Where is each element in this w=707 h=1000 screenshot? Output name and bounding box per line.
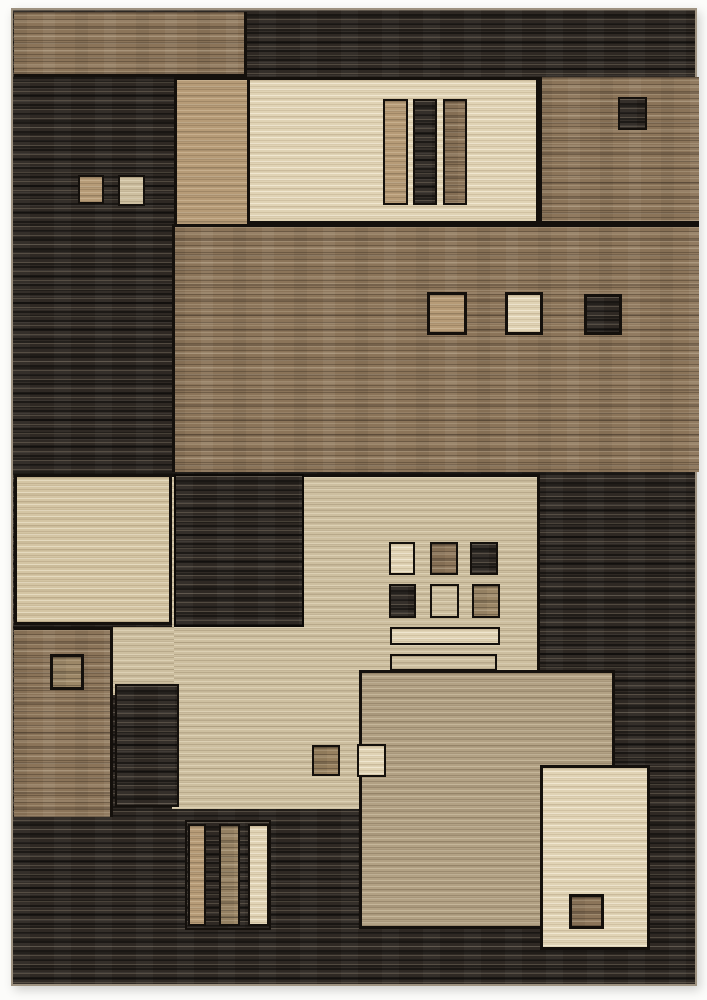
grid-bar-cream — [390, 627, 500, 645]
top-right-dark-square — [618, 97, 647, 130]
grid-square-brown-1 — [430, 542, 458, 575]
left-cream-rectangle — [14, 474, 172, 625]
grid-square-cream — [389, 542, 415, 575]
grid-square-beige — [430, 584, 459, 618]
bottom-bar-tan — [188, 824, 206, 926]
rug-photo — [0, 0, 707, 1000]
grid-square-brown-2 — [472, 584, 500, 618]
top-panel-bar-brown — [443, 99, 467, 205]
bottom-bar-cream — [248, 824, 269, 926]
middle-band-dark-square — [584, 294, 622, 335]
left-field-beige-square — [118, 175, 145, 206]
rug — [11, 8, 697, 986]
top-tan-column — [174, 77, 247, 224]
top-left-brown-band — [14, 12, 247, 77]
small-cream-square-on-taupe — [357, 744, 386, 777]
bottom-bars-group — [185, 820, 271, 930]
middle-band-tan-square — [427, 292, 467, 335]
top-panel-bar-tan — [383, 99, 408, 205]
bottom-right-brown-square — [569, 894, 604, 929]
middle-brown-band — [172, 224, 699, 472]
grid-square-dark-2 — [389, 584, 416, 618]
grid-bar-beige — [390, 654, 497, 671]
lower-dark-strip — [115, 684, 179, 807]
bottom-bar-brown — [219, 824, 240, 926]
small-brown-square-on-beige — [312, 745, 340, 776]
middle-band-cream-square — [505, 292, 543, 335]
grid-square-dark-1 — [470, 542, 498, 575]
left-field-tan-square — [78, 175, 104, 204]
top-panel-bar-dark — [413, 99, 437, 205]
lower-left-outlined-square — [50, 654, 84, 690]
inner-dark-block — [174, 474, 304, 627]
